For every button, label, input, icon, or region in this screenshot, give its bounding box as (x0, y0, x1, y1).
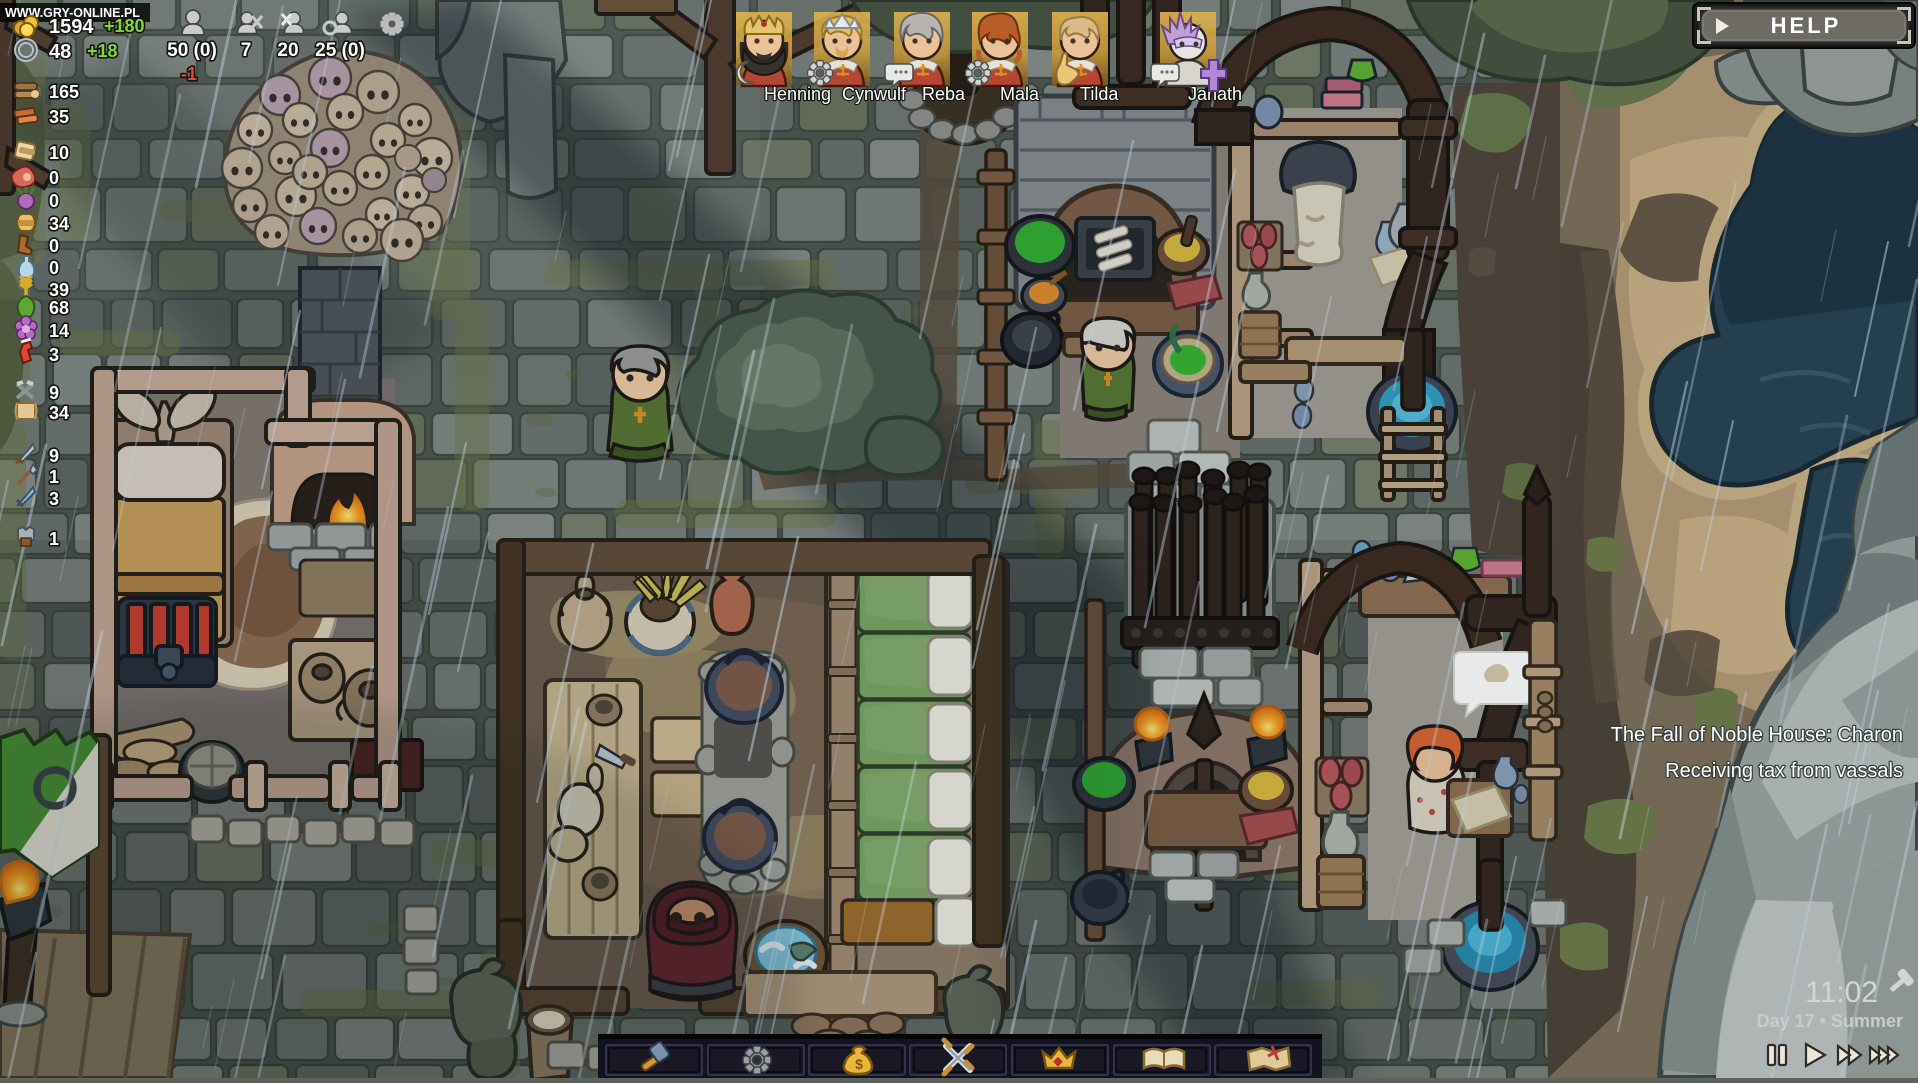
svg-text:1: 1 (49, 467, 59, 487)
svg-text:3: 3 (49, 489, 59, 509)
svg-text:165: 165 (49, 82, 79, 102)
svg-text:$: $ (855, 1056, 863, 1072)
svg-text:9: 9 (49, 383, 59, 403)
svg-text:+180: +180 (104, 16, 145, 36)
svg-text:+18: +18 (87, 41, 118, 61)
svg-text:Day 17 • Summer: Day 17 • Summer (1757, 1011, 1903, 1031)
svg-text:Receiving tax from vassals: Receiving tax from vassals (1665, 760, 1903, 782)
svg-text:0: 0 (49, 191, 59, 211)
svg-text:39: 39 (49, 280, 69, 300)
svg-text:HELP: HELP (1771, 13, 1842, 38)
svg-text:10: 10 (49, 143, 69, 163)
svg-text:Tilda: Tilda (1080, 84, 1119, 104)
svg-text:35: 35 (49, 107, 69, 127)
svg-text:0: 0 (49, 236, 59, 256)
svg-text:68: 68 (49, 298, 69, 318)
svg-text:50 (0): 50 (0) (167, 40, 217, 61)
svg-text:Reba: Reba (922, 84, 966, 104)
svg-text:48: 48 (49, 41, 71, 63)
svg-text:The Fall of Noble House: Charo: The Fall of Noble House: Charon (1611, 724, 1903, 746)
svg-text:34: 34 (49, 214, 69, 234)
svg-text:34: 34 (49, 403, 69, 423)
svg-text:14: 14 (49, 321, 69, 341)
svg-text:3: 3 (49, 345, 59, 365)
svg-text:11:02: 11:02 (1805, 976, 1878, 1009)
svg-text:9: 9 (49, 446, 59, 466)
svg-text:0: 0 (49, 168, 59, 188)
svg-text:1594: 1594 (49, 16, 94, 38)
svg-text:7: 7 (241, 40, 252, 61)
svg-text:-1: -1 (181, 64, 197, 84)
svg-text:0: 0 (49, 258, 59, 278)
svg-text:Mala: Mala (1000, 84, 1040, 104)
svg-text:Cynwulf: Cynwulf (842, 84, 907, 104)
svg-text:20: 20 (277, 40, 298, 61)
svg-text:1: 1 (49, 529, 59, 549)
svg-text:25 (0): 25 (0) (315, 40, 365, 61)
